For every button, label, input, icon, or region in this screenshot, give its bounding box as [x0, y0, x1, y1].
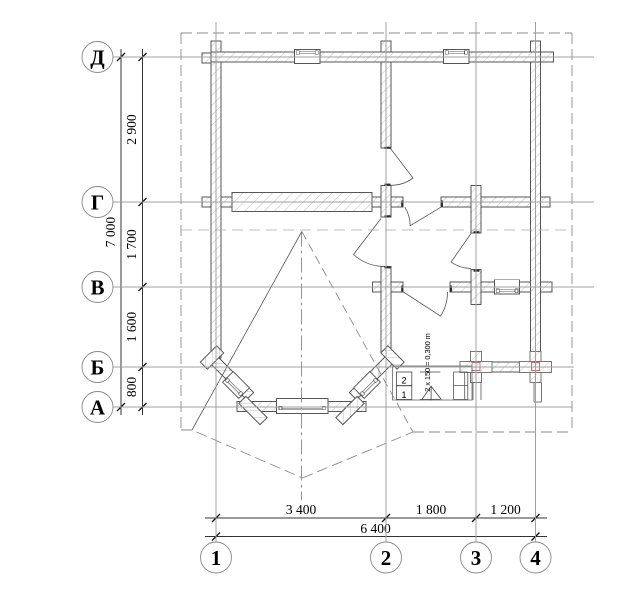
svg-text:1 600: 1 600: [124, 312, 139, 343]
svg-text:800: 800: [124, 377, 139, 398]
svg-text:Б: Б: [91, 356, 105, 380]
svg-text:А: А: [90, 396, 106, 420]
svg-text:1: 1: [211, 546, 222, 570]
svg-text:1: 1: [401, 390, 406, 400]
svg-text:1 200: 1 200: [490, 502, 521, 517]
svg-text:Д: Д: [90, 46, 105, 70]
svg-text:2 x 150 = 0,300 m: 2 x 150 = 0,300 m: [423, 333, 432, 392]
svg-text:1 800: 1 800: [416, 502, 447, 517]
svg-text:4: 4: [530, 546, 541, 570]
svg-text:2 900: 2 900: [124, 114, 139, 145]
svg-text:3: 3: [471, 546, 482, 570]
svg-text:2: 2: [401, 375, 406, 385]
svg-text:1 700: 1 700: [124, 229, 139, 260]
svg-text:В: В: [90, 276, 104, 300]
svg-text:3 400: 3 400: [286, 502, 317, 517]
svg-text:7 000: 7 000: [103, 217, 118, 248]
svg-text:2: 2: [381, 546, 392, 570]
svg-text:Г: Г: [91, 191, 104, 215]
